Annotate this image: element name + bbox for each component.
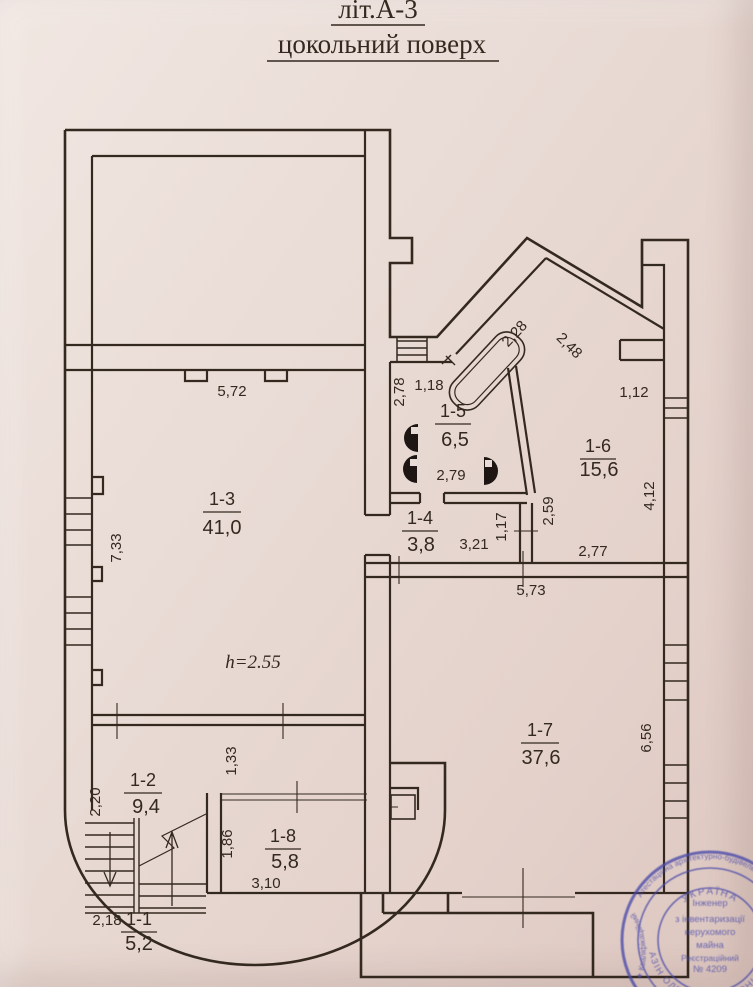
room-labels: 1-3 41,0 1-5 6,5 1-6 15,6 1-4 3,8 1-7 37…	[121, 401, 618, 955]
dimension: 7,33	[108, 533, 125, 562]
room-area: 15,6	[580, 459, 619, 481]
dimension: 4,12	[641, 481, 658, 510]
dimension: 2,48	[553, 329, 586, 362]
floorplan-drawing: літ.А-3 цокольний поверх 1-3 41,0 1-5 6,…	[0, 0, 753, 987]
dimension: 3,10	[251, 875, 280, 892]
drawing-title: літ.А-3 цокольний поверх	[267, 0, 499, 61]
dimension: 3,21	[459, 536, 488, 553]
dimension: 1,33	[223, 746, 240, 775]
stair-treads	[85, 818, 206, 913]
ceiling-height-note: h=2.55	[225, 652, 281, 673]
dimension: 1,18	[414, 377, 443, 394]
dimension: 2,59	[540, 496, 557, 525]
stamp-center-text: Інженер з інвентаризації нерухомого майн…	[675, 898, 745, 975]
dimension: 2,78	[391, 377, 408, 406]
dimension: 1,12	[619, 384, 648, 401]
stamp-role-line: нерухомого	[685, 927, 736, 938]
room-id: 1-4	[407, 508, 433, 528]
inner-walls	[65, 130, 688, 893]
dimension: 5,73	[516, 582, 545, 599]
fixture-notch	[411, 427, 418, 434]
room-id: 1-2	[130, 770, 156, 790]
dimension: 5,72	[217, 383, 246, 400]
room-area: 6,5	[441, 429, 469, 451]
dimension: 2,28	[499, 317, 531, 350]
room-id: 1-1	[126, 909, 152, 929]
dimension: 1,86	[219, 829, 236, 858]
room-id: 1-6	[585, 436, 611, 456]
bathtub-tap-icon	[442, 355, 455, 365]
room-area: 5,8	[271, 851, 299, 873]
room-id: 1-7	[527, 720, 553, 740]
door-tick-marks	[117, 531, 575, 928]
room-area: 5,2	[125, 933, 153, 955]
stamp-reg-number: № 4209	[693, 964, 727, 975]
room-id: 1-3	[209, 489, 235, 509]
stamp-role-line: Інженер	[692, 898, 727, 909]
dimension: 2,20	[87, 787, 104, 816]
room-area: 9,4	[132, 796, 160, 818]
staircase	[85, 814, 206, 913]
dimension: 2,18	[92, 912, 121, 929]
floorplan-page: літ.А-3 цокольний поверх 1-3 41,0 1-5 6,…	[0, 0, 753, 987]
dimension: 1,17	[493, 512, 510, 541]
dimension: 2,79	[436, 467, 465, 484]
stamp-role-line: з інвентаризації	[675, 914, 745, 925]
room-id: 1-8	[270, 826, 296, 846]
fixture-notch	[485, 460, 492, 467]
dimension: 2,77	[578, 543, 607, 560]
room-area: 41,0	[203, 517, 242, 539]
stamp-role-line: майна	[696, 940, 724, 951]
fixture-notch	[410, 459, 417, 466]
stair-up-arrow	[166, 832, 178, 906]
stamp-reg-label: Реєстраційний	[681, 953, 739, 963]
room-id: 1-5	[440, 401, 466, 421]
dimension: 6,56	[638, 723, 655, 752]
room-area: 37,6	[522, 747, 561, 769]
room-area: 3,8	[407, 534, 435, 556]
title-line2: цокольний поверх	[278, 29, 487, 59]
title-line1: літ.А-3	[338, 0, 417, 24]
